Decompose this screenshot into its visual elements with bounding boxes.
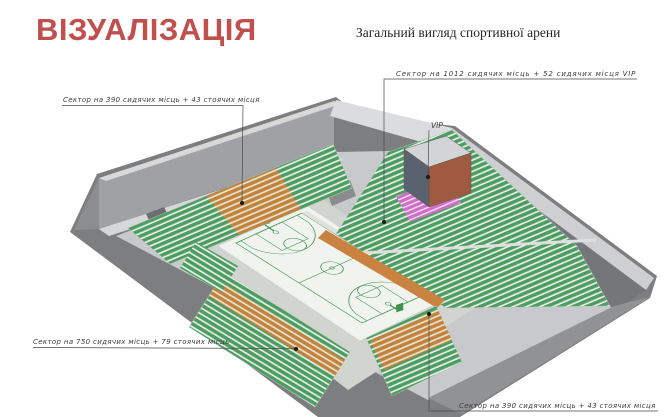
callout-lower-left-label: Сектор на 750 сидячих місць + 79 стоячих… (33, 338, 230, 346)
page: Сектор на 390 сидячих місць + 43 стоячих… (0, 0, 665, 417)
callout-vip-label: VIP (431, 121, 443, 130)
callout-lower-right-dot (427, 312, 431, 316)
callout-right-dot (382, 220, 386, 224)
page-subtitle: Загальний вигляд спортивної арени (356, 25, 560, 41)
vip-box (404, 136, 471, 207)
callout-lower-right-label: Сектор на 390 сидячих місць + 43 стоячих… (459, 402, 656, 410)
callout-vip-dot (426, 175, 430, 179)
callout-upper-left-dot (240, 201, 244, 205)
callout-upper-left-label: Сектор на 390 сидячих місць + 43 стоячих… (63, 96, 260, 104)
arena-illustration: Сектор на 390 сидячих місць + 43 стоячих… (0, 0, 665, 417)
callout-lower-left-dot (294, 347, 298, 351)
page-title: ВІЗУАЛІЗАЦІЯ (36, 12, 257, 48)
callout-right-label: Сектор на 1012 сидячих місць + 52 сидячи… (396, 70, 636, 78)
